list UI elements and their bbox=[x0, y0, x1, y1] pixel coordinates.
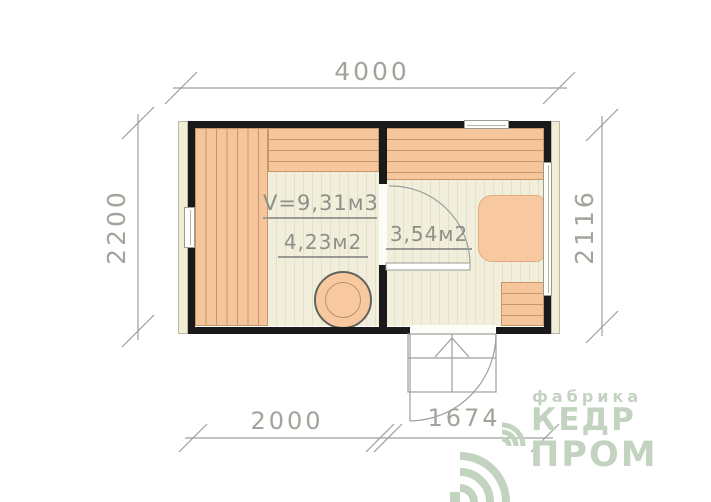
washroom-area-label: 3,54м2 bbox=[386, 222, 472, 250]
dimension-left-value: 2200 bbox=[99, 199, 133, 255]
steam-room-area-label: 4,23м2 bbox=[278, 230, 368, 258]
kedr-prom-tree-icon bbox=[450, 420, 528, 502]
dimension-top-value: 4000 bbox=[297, 56, 447, 86]
dimension-right-value: 2116 bbox=[567, 199, 601, 255]
logo-title-top: КЕДР bbox=[531, 405, 636, 436]
steam-room-volume-label: V=9,31м3 bbox=[263, 191, 377, 219]
logo-title-bottom: ПРОМ bbox=[530, 438, 658, 473]
floor-plan-canvas: 4000 2200 2116 2000 1674 V=9,31м3 4,23м2… bbox=[0, 0, 711, 502]
dimension-bottom-left-value: 2000 bbox=[237, 407, 337, 435]
